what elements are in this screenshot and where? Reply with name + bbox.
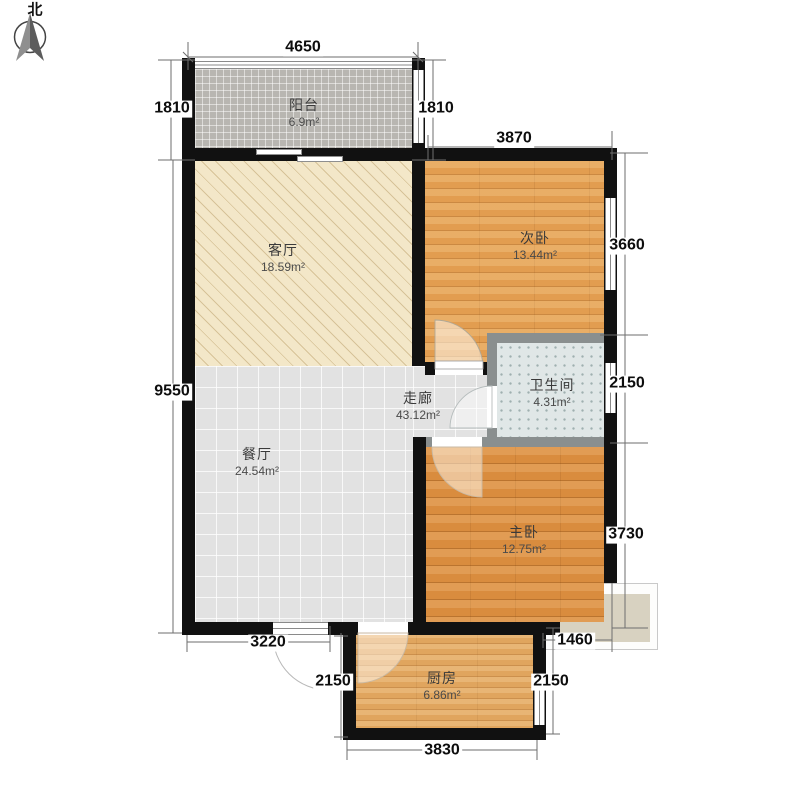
master-door-opening <box>432 437 482 447</box>
bathroom-wall-top <box>487 333 617 343</box>
dim-entrance: 2150 <box>313 674 353 691</box>
dim-bedroom2-top: 3870 <box>494 131 534 148</box>
outer-wall-right-master <box>604 443 617 583</box>
dim-bathroom-right: 2150 <box>607 376 647 393</box>
outer-wall-left <box>182 58 195 635</box>
kitchen-wall-bottom <box>343 728 546 740</box>
compass-needle-right <box>30 13 44 61</box>
wall-dining-master <box>413 437 426 635</box>
compass-needle-left <box>16 13 30 61</box>
compass-circle <box>15 22 46 53</box>
compass <box>15 13 46 61</box>
dim-platform: 1460 <box>555 633 595 650</box>
living-room-floor <box>195 161 412 366</box>
corridor-floor <box>413 366 487 437</box>
bedroom2-floor <box>425 161 605 362</box>
master-bedroom-floor <box>426 447 604 622</box>
dim-kitchen-bottom: 3830 <box>422 743 462 760</box>
compass-north-label: 北 <box>27 0 42 20</box>
balcony-floor <box>195 69 412 149</box>
dining-floor <box>195 366 413 622</box>
wall-top-strip <box>182 148 617 161</box>
floor-plan: 北 阳台 6.9m² 客厅 18.59m² 次卧 13.44m² 卫生间 4.3… <box>0 0 800 800</box>
dim-top: 4650 <box>283 40 323 57</box>
bathroom-door-opening <box>487 386 497 428</box>
dim-balcony-right: 1810 <box>416 101 456 118</box>
bathroom-floor <box>497 343 604 437</box>
dim-kitchen-right: 2150 <box>531 674 571 691</box>
sliding-door-panel-1 <box>256 149 302 155</box>
dim-bottom-left: 3220 <box>248 635 288 652</box>
kitchen-door-opening <box>358 622 408 635</box>
balcony-rail-window <box>195 61 412 69</box>
living-wall-right <box>412 161 425 366</box>
sliding-door-panel-2 <box>297 156 343 162</box>
dim-balcony-left: 1810 <box>152 101 192 118</box>
dim-bedroom2-right: 3660 <box>607 238 647 255</box>
dim-master-right: 3730 <box>606 527 646 544</box>
bedroom2-door-opening <box>435 362 483 375</box>
kitchen-floor <box>356 633 533 728</box>
dim-left: 9550 <box>152 384 192 401</box>
